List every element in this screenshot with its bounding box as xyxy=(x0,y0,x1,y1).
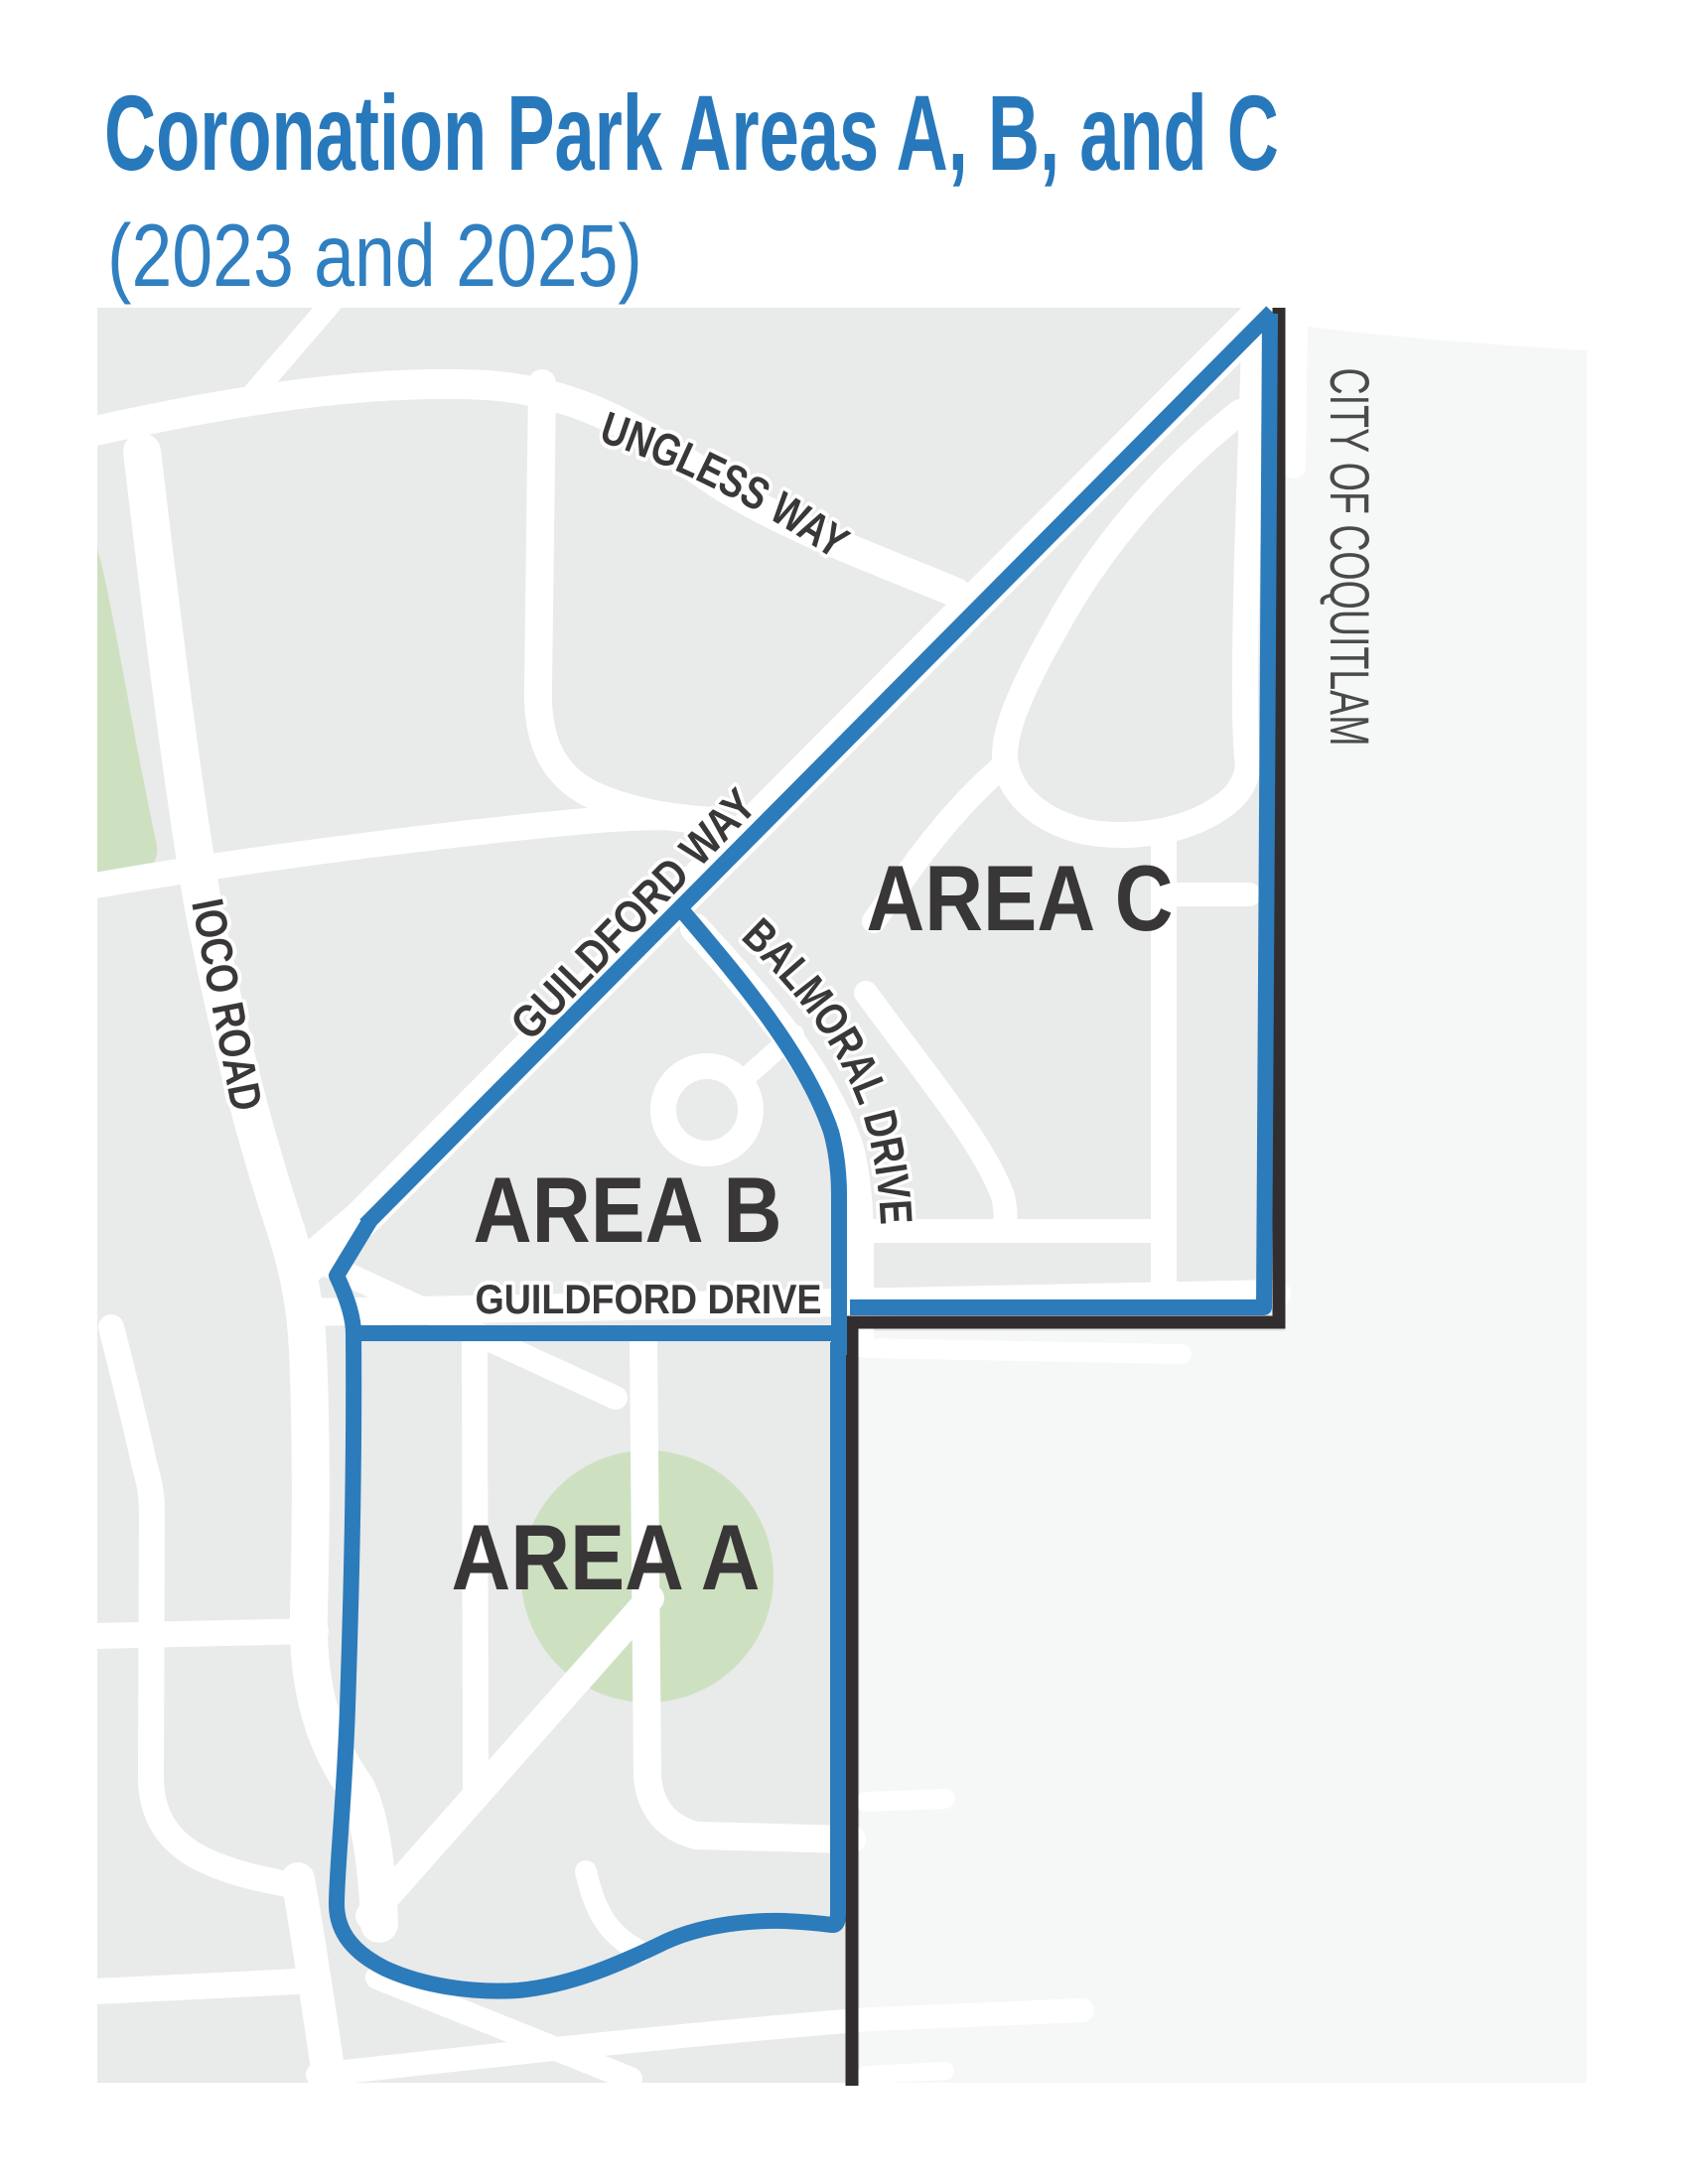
svg-text:AREA C: AREA C xyxy=(867,846,1174,950)
svg-text:GUILDFORD DRIVE: GUILDFORD DRIVE xyxy=(476,1276,822,1322)
svg-text:(2023 and 2025): (2023 and 2025) xyxy=(107,206,642,305)
svg-text:AREA A: AREA A xyxy=(452,1505,761,1609)
svg-text:AREA B: AREA B xyxy=(474,1158,782,1262)
svg-text:Coronation Park Areas A, B, an: Coronation Park Areas A, B, and C xyxy=(104,74,1279,194)
svg-text:CITY OF COQUITLAM: CITY OF COQUITLAM xyxy=(1319,368,1381,747)
